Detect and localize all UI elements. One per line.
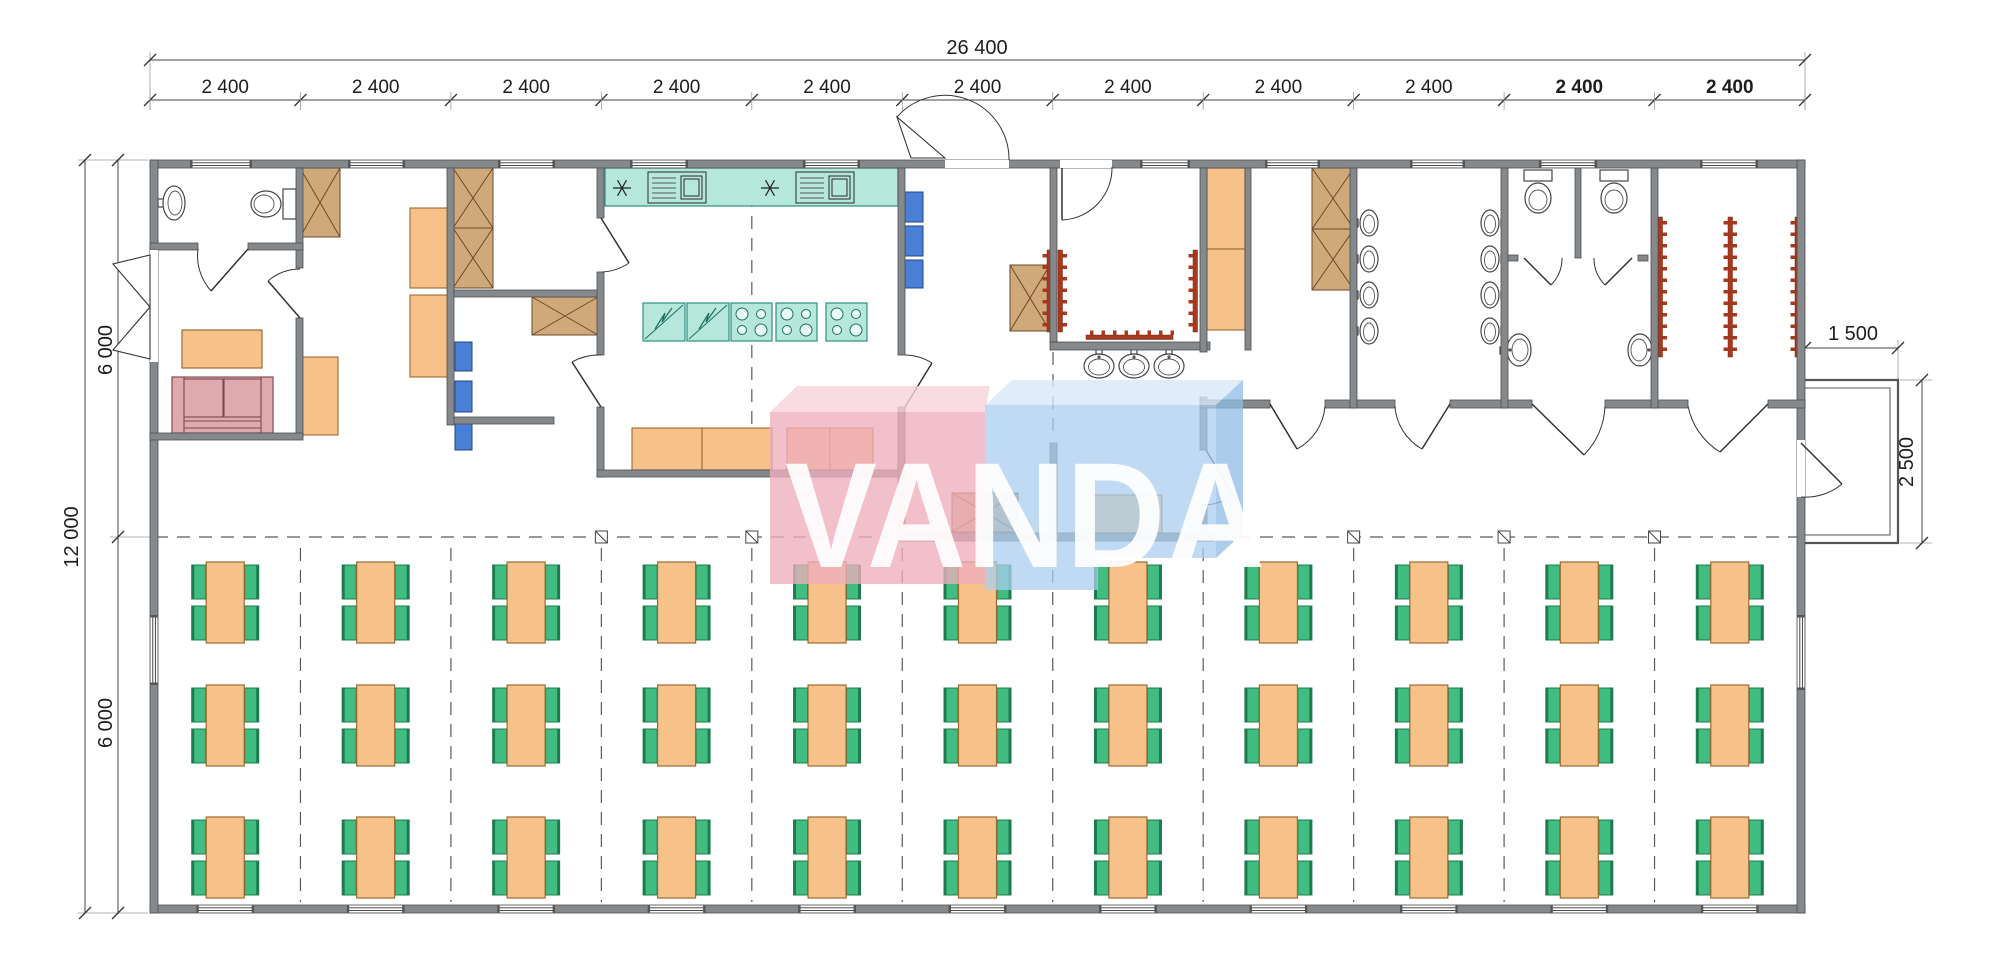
entry-door-leaf [113, 255, 150, 307]
chair-back [256, 565, 259, 599]
dining-table-set [794, 685, 861, 766]
wash-basin [1084, 347, 1114, 378]
dining-table [357, 685, 395, 766]
window [798, 906, 856, 913]
chair-back [192, 688, 195, 722]
stove [826, 303, 867, 341]
dining-table [658, 562, 696, 643]
dining-table [1109, 817, 1147, 898]
chair-back [1696, 729, 1699, 763]
window [1265, 161, 1320, 168]
coat-rack [1189, 250, 1198, 332]
window [1099, 906, 1157, 913]
chair-back [858, 606, 861, 640]
chair-back [1395, 861, 1398, 895]
window [151, 615, 158, 685]
chair-back [407, 729, 410, 763]
entry-door-leaf [113, 307, 150, 359]
module-width-label: 2 400 [653, 77, 701, 98]
chair-back [1696, 861, 1699, 895]
chair-back [557, 729, 560, 763]
chair-back [1460, 565, 1463, 599]
dining-table [206, 562, 244, 643]
chair-back [256, 688, 259, 722]
chair-back [1610, 688, 1613, 722]
sofa [172, 377, 273, 433]
porch-width-dimension: 1 500 [1828, 323, 1878, 345]
dining-table-set [1546, 817, 1613, 898]
dining-table-set [493, 685, 560, 766]
chair-back [493, 565, 496, 599]
watermark-blue-top [985, 380, 1243, 405]
module-width-label: 2 400 [954, 77, 1002, 98]
chair-back [407, 820, 410, 854]
chair-back [1245, 729, 1248, 763]
chair-back [1009, 729, 1012, 763]
chair-back [493, 729, 496, 763]
chair-back [1309, 688, 1312, 722]
dining-table [658, 817, 696, 898]
chair-back [1159, 861, 1162, 895]
dining-table [1410, 562, 1448, 643]
wardrobe-cabinet [1312, 229, 1354, 290]
dining-table-set [342, 817, 409, 898]
chair-back [643, 729, 646, 763]
column-icon [1649, 531, 1661, 543]
window [190, 161, 252, 168]
chair-back [794, 606, 797, 640]
dining-table [357, 817, 395, 898]
chair-back [1245, 688, 1248, 722]
dining-table [808, 685, 846, 766]
chair-back [1094, 861, 1097, 895]
chair-back [1309, 820, 1312, 854]
chair-back [1460, 606, 1463, 640]
dining-table-set [1395, 817, 1462, 898]
blue-shelf [905, 260, 923, 288]
furniture-unit [632, 428, 702, 470]
dining-table-set [1094, 817, 1161, 898]
chair-back [1761, 606, 1764, 640]
chair-back [342, 729, 345, 763]
chair-back [192, 565, 195, 599]
total-width-dimension: 26 400 [946, 37, 1007, 59]
kitchen-island [643, 303, 867, 341]
chair-back [192, 861, 195, 895]
fridge [643, 303, 685, 341]
chair-back [1610, 729, 1613, 763]
chair-back [407, 688, 410, 722]
chair-back [1546, 606, 1549, 640]
dining-table [507, 685, 545, 766]
dining-table-set [192, 685, 259, 766]
door-dryroom3-dining [1688, 404, 1768, 452]
wardrobe-cabinet [300, 168, 340, 237]
dining-table-set [643, 685, 710, 766]
module-width-label: 2 400 [1405, 77, 1453, 98]
dining-table-set [1245, 685, 1312, 766]
floor-plan-drawing: 26 400 2 4002 4002 4002 4002 4002 4002 4… [0, 0, 2000, 975]
kitchen-counter [605, 168, 898, 206]
module-width-label: 2 400 [201, 77, 249, 98]
bathroom-sink [158, 186, 185, 220]
window [498, 161, 555, 168]
dining-table-set [1546, 562, 1613, 643]
chair-back [1309, 861, 1312, 895]
dining-table-set [944, 817, 1011, 898]
chair-back [342, 861, 345, 895]
dining-table [357, 562, 395, 643]
chair-back [643, 861, 646, 895]
module-width-label: 2 400 [352, 77, 400, 98]
fridge [687, 303, 729, 341]
chair-back [1159, 606, 1162, 640]
chair-back [1245, 606, 1248, 640]
window [1140, 161, 1190, 168]
dining-table-set [1696, 562, 1763, 643]
chair-back [708, 565, 711, 599]
chair-back [643, 606, 646, 640]
chair-back [643, 565, 646, 599]
chair-back [493, 606, 496, 640]
toilet [251, 189, 296, 219]
window [347, 906, 405, 913]
chair-back [192, 606, 195, 640]
chair-back [1245, 861, 1248, 895]
dining-table [1259, 685, 1297, 766]
window [196, 906, 254, 913]
furniture-unit [410, 208, 450, 288]
chair-back [1610, 606, 1613, 640]
chair-back [708, 820, 711, 854]
window [1249, 906, 1307, 913]
chair-back [1395, 729, 1398, 763]
dining-table [507, 562, 545, 643]
furniture-unit [410, 295, 450, 377]
chair-back [944, 606, 947, 640]
chair-back [1610, 861, 1613, 895]
dining-table [959, 685, 997, 766]
window [1701, 906, 1759, 913]
chair-back [557, 606, 560, 640]
chair-back [944, 820, 947, 854]
chair-back [1460, 729, 1463, 763]
chair-back [794, 688, 797, 722]
exterior-door-dryroom [897, 95, 1009, 168]
window [630, 161, 688, 168]
chair-back [1610, 820, 1613, 854]
dining-table [1560, 562, 1598, 643]
chair-back [1009, 820, 1012, 854]
module-width-dimensions: 2 4002 4002 4002 4002 4002 4002 4002 400… [201, 77, 1753, 98]
wardrobe-cabinet [1312, 168, 1354, 229]
window [348, 161, 405, 168]
door-office-kitchen [601, 218, 629, 272]
dining-table [507, 817, 545, 898]
window [803, 161, 860, 168]
chair-back [1696, 688, 1699, 722]
door-wc-dining [1532, 404, 1605, 455]
chair-back [1395, 688, 1398, 722]
chair-back [1546, 729, 1549, 763]
coat-racks [1043, 217, 1800, 357]
chair-back [256, 861, 259, 895]
blue-shelf [455, 421, 472, 450]
chair-back [1245, 820, 1248, 854]
wash-basin [1154, 347, 1184, 378]
lower-half-dimension: 6 000 [95, 698, 117, 748]
dining-table-set [1696, 817, 1763, 898]
chair-back [858, 688, 861, 722]
dining-table [1560, 685, 1598, 766]
chair-back [256, 820, 259, 854]
dining-table [1560, 817, 1598, 898]
dining-table-set [493, 562, 560, 643]
furniture-unit [302, 357, 338, 435]
watermark-text: VANDA [785, 431, 1265, 599]
window [1798, 615, 1805, 690]
module-width-label: 2 400 [1556, 77, 1604, 98]
chair-back [342, 688, 345, 722]
chair-back [1309, 565, 1312, 599]
chair-back [643, 688, 646, 722]
column-icon [1348, 531, 1360, 543]
stove [776, 303, 817, 341]
chair-back [192, 729, 195, 763]
chair-back [1761, 861, 1764, 895]
window [648, 906, 706, 913]
door-lounge-bedroom [268, 269, 300, 318]
chair-back [407, 861, 410, 895]
chair-back [643, 820, 646, 854]
dining-table-set [1395, 562, 1462, 643]
dining-table [959, 817, 997, 898]
chair-back [342, 606, 345, 640]
door-storage [572, 355, 601, 407]
chair-back [1761, 565, 1764, 599]
chair-back [1395, 820, 1398, 854]
watermark: VANDA [770, 380, 1265, 599]
window [1410, 161, 1465, 168]
chair-back [794, 729, 797, 763]
exterior-door-dryroom2 [1060, 160, 1112, 220]
chair-back [1094, 729, 1097, 763]
watermark-pink-top [770, 386, 990, 412]
dining-table-set [342, 685, 409, 766]
dining-table [1410, 685, 1448, 766]
chair-back [944, 688, 947, 722]
chair-back [557, 688, 560, 722]
stall-door [1524, 258, 1562, 285]
chair-back [858, 861, 861, 895]
door-porch [1797, 440, 1842, 497]
chair-back [256, 606, 259, 640]
dining-table [1711, 817, 1749, 898]
window [1550, 906, 1608, 913]
chair-back [493, 820, 496, 854]
blue-shelf [905, 226, 923, 256]
coat-rack [1058, 250, 1067, 332]
dining-table-set [944, 685, 1011, 766]
urinals [1352, 210, 1507, 344]
chair-back [858, 820, 861, 854]
dining-table [1259, 817, 1297, 898]
chair-back [858, 729, 861, 763]
chair-back [342, 565, 345, 599]
dining-table-set [643, 817, 710, 898]
chair-back [407, 606, 410, 640]
window [497, 906, 555, 913]
module-width-label: 2 400 [803, 77, 851, 98]
chair-back [1009, 861, 1012, 895]
dining-table [206, 817, 244, 898]
chair-back [1761, 820, 1764, 854]
dining-table-set [1696, 685, 1763, 766]
stall-door [1594, 258, 1632, 285]
chair-back [342, 820, 345, 854]
chair-back [1696, 606, 1699, 640]
chair-back [1159, 729, 1162, 763]
chair-back [1309, 729, 1312, 763]
chair-back [1696, 820, 1699, 854]
chair-back [1610, 565, 1613, 599]
chair-back [1460, 688, 1463, 722]
chair-back [1159, 820, 1162, 854]
module-width-label: 2 400 [502, 77, 550, 98]
dining-table [1109, 685, 1147, 766]
dining-table-set [1245, 817, 1312, 898]
blue-shelf [455, 342, 472, 371]
lounge-table [182, 330, 262, 368]
chair-back [794, 820, 797, 854]
chair-back [1761, 688, 1764, 722]
module-width-label: 2 400 [1706, 77, 1754, 98]
toilet [1600, 170, 1628, 213]
column-icon [1498, 531, 1510, 543]
dining-area [192, 562, 1764, 898]
dining-table-set [192, 817, 259, 898]
chair-back [1761, 729, 1764, 763]
blue-shelf [455, 381, 472, 412]
chair-back [1094, 606, 1097, 640]
chair-back [1546, 565, 1549, 599]
dining-table-set [192, 562, 259, 643]
chair-back [1009, 688, 1012, 722]
chair-back [944, 861, 947, 895]
chair-back [708, 688, 711, 722]
dining-table [1410, 817, 1448, 898]
window [1539, 161, 1597, 168]
chair-back [1546, 688, 1549, 722]
dining-table-set [342, 562, 409, 643]
wardrobe-cabinet [532, 297, 598, 335]
toilet [1524, 170, 1552, 213]
chair-back [1395, 606, 1398, 640]
coat-rack [1724, 217, 1738, 357]
chair-back [708, 729, 711, 763]
chair-back [708, 606, 711, 640]
chair-back [1094, 820, 1097, 854]
chair-back [944, 729, 947, 763]
dining-table-set [794, 817, 861, 898]
dining-table [1259, 562, 1297, 643]
chair-back [1395, 565, 1398, 599]
wash-basin [1119, 347, 1149, 378]
chair-back [1460, 861, 1463, 895]
dining-table [206, 685, 244, 766]
furniture-unit [1207, 168, 1245, 249]
door-bathroom [198, 249, 248, 291]
chair-back [557, 820, 560, 854]
window [949, 906, 1007, 913]
furniture-unit [1207, 249, 1245, 330]
chair-back [708, 861, 711, 895]
porch-depth-dimension: 2 500 [1896, 437, 1918, 487]
coat-rack [1658, 217, 1667, 357]
dining-table-set [1395, 685, 1462, 766]
chair-back [1009, 606, 1012, 640]
coat-rack [1086, 331, 1174, 340]
wardrobe-cabinet [453, 228, 493, 288]
column-icon [595, 531, 607, 543]
chair-back [557, 565, 560, 599]
chair-back [493, 688, 496, 722]
module-width-label: 2 400 [1104, 77, 1152, 98]
chair-back [192, 820, 195, 854]
stove [731, 303, 772, 341]
total-height-dimension: 12 000 [61, 506, 83, 567]
dining-table-set [493, 817, 560, 898]
door-washroom-dining [1395, 404, 1450, 449]
blue-shelf [905, 192, 923, 222]
chair-back [256, 729, 259, 763]
door-lockerroom-dining [1270, 404, 1325, 449]
floor-plan-page: 26 400 2 4002 4002 4002 4002 4002 4002 4… [0, 0, 2000, 975]
wardrobe-cabinet [453, 168, 493, 228]
window [1700, 161, 1758, 168]
chair-back [1696, 565, 1699, 599]
dining-table [1711, 562, 1749, 643]
chair-back [1159, 688, 1162, 722]
module-width-label: 2 400 [1255, 77, 1303, 98]
chair-back [1546, 820, 1549, 854]
dining-table [1711, 685, 1749, 766]
dining-table [658, 685, 696, 766]
window [1400, 906, 1458, 913]
chair-back [407, 565, 410, 599]
chair-back [493, 861, 496, 895]
chair-back [1309, 606, 1312, 640]
wardrobe-cabinet [1010, 265, 1050, 331]
chair-back [1094, 688, 1097, 722]
chair-back [794, 861, 797, 895]
dining-table-set [643, 562, 710, 643]
column-icon [746, 531, 758, 543]
furniture-unit [702, 428, 772, 470]
chair-back [1546, 861, 1549, 895]
chair-back [557, 861, 560, 895]
dining-table-set [1094, 685, 1161, 766]
dining-table [808, 817, 846, 898]
dining-table-set [1546, 685, 1613, 766]
chair-back [1460, 820, 1463, 854]
